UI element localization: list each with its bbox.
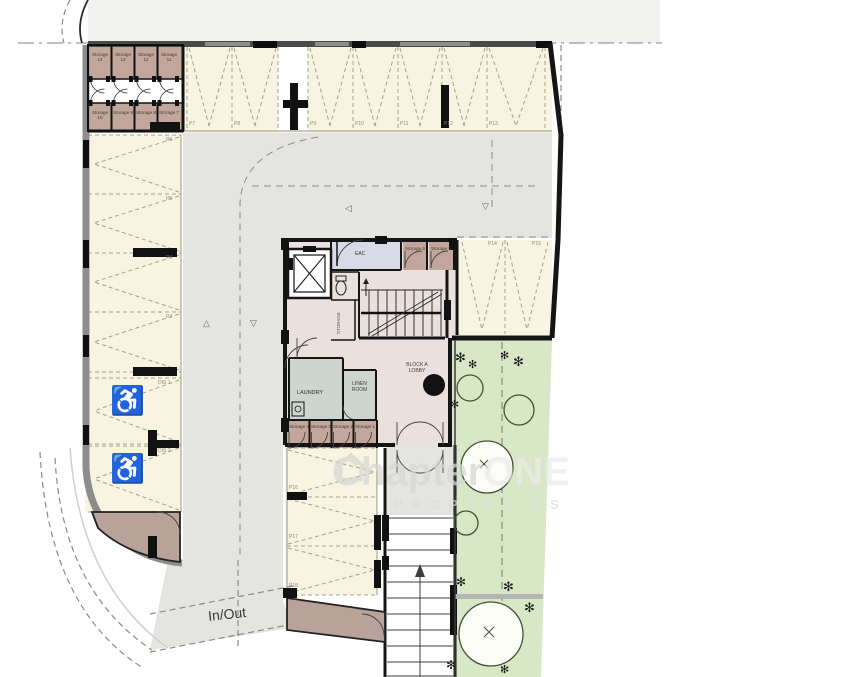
room-label-laundry: LAUNDRY <box>297 390 323 396</box>
shrub-icon: ✻ <box>456 575 466 589</box>
room-label-store: STORAGE <box>336 312 341 334</box>
shrub-icon: ✻ <box>500 663 509 676</box>
wheelchair-icon: ♿ <box>110 384 145 417</box>
parking-label: P18 <box>289 584 298 590</box>
plan-linework <box>0 0 850 677</box>
storage-label: Storage 11 <box>158 52 180 63</box>
parking-label: P7 <box>189 122 195 128</box>
parking-label: P16 <box>289 486 298 492</box>
shrub-icon: ✻ <box>455 350 466 366</box>
parking-label: P9 <box>310 122 316 128</box>
parking-label: P4 <box>166 256 172 262</box>
parking-label: DIS 1 <box>158 381 171 387</box>
shrub-icon: ✻ <box>446 658 456 672</box>
wheelchair-icon: ♿ <box>110 452 145 485</box>
parking-label: P8 <box>234 122 240 128</box>
room-label-lobby: BLOCK A LOBBY <box>399 363 435 375</box>
storage-label: Storage 12 <box>135 52 157 63</box>
floor-plan: Storage 14 Storage 13 Storage 12 Storage… <box>0 0 850 677</box>
storage-label: Storage 4 <box>288 424 310 429</box>
direction-triangle-icon: △ <box>203 318 210 329</box>
parking-label: P14 <box>488 242 497 248</box>
direction-triangle-icon: ▽ <box>482 201 489 212</box>
storage-label: Storage 5 <box>430 246 452 251</box>
room-label-eac: EAC <box>355 252 365 258</box>
direction-triangle-icon: ▽ <box>250 318 257 329</box>
parking-label: P11 <box>400 122 409 128</box>
shrub-icon: ✻ <box>513 354 524 370</box>
storage-label: Storage 9 <box>112 110 134 115</box>
shrub-icon: ✻ <box>468 358 477 371</box>
storage-label: Storage 3 <box>310 424 332 429</box>
parking-label: DIS 2 <box>158 449 171 455</box>
storage-label: Storage 2 <box>332 424 354 429</box>
direction-triangle-icon: ◁ <box>345 203 352 214</box>
parking-label: P15 <box>532 242 541 248</box>
storage-label: Storage 14 <box>89 52 111 63</box>
storage-label: Storage 6 <box>404 246 426 251</box>
storage-label: Storage 13 <box>112 52 134 63</box>
room-label-linen: LINEN ROOM <box>346 382 373 394</box>
parking-label: P3 <box>166 315 172 321</box>
parking-label: P10 <box>355 122 364 128</box>
parking-label: P6 <box>166 138 172 144</box>
parking-label: P13 <box>489 122 498 128</box>
storage-label: Storage 7 <box>158 110 180 115</box>
parking-label: P5 <box>166 197 172 203</box>
lobby-column <box>423 374 445 396</box>
parking-label: P12 <box>444 122 453 128</box>
shrub-icon: ✻ <box>524 600 535 616</box>
shrub-icon: ✻ <box>503 579 514 595</box>
storage-label: Storage 8 <box>135 110 157 115</box>
storage-label: Storage 1 <box>354 424 376 429</box>
parking-label: P17 <box>289 535 298 541</box>
storage-label: Storage 10 <box>89 110 111 121</box>
shrub-icon: ✻ <box>450 398 459 411</box>
shrub-icon: ✻ <box>500 349 509 362</box>
